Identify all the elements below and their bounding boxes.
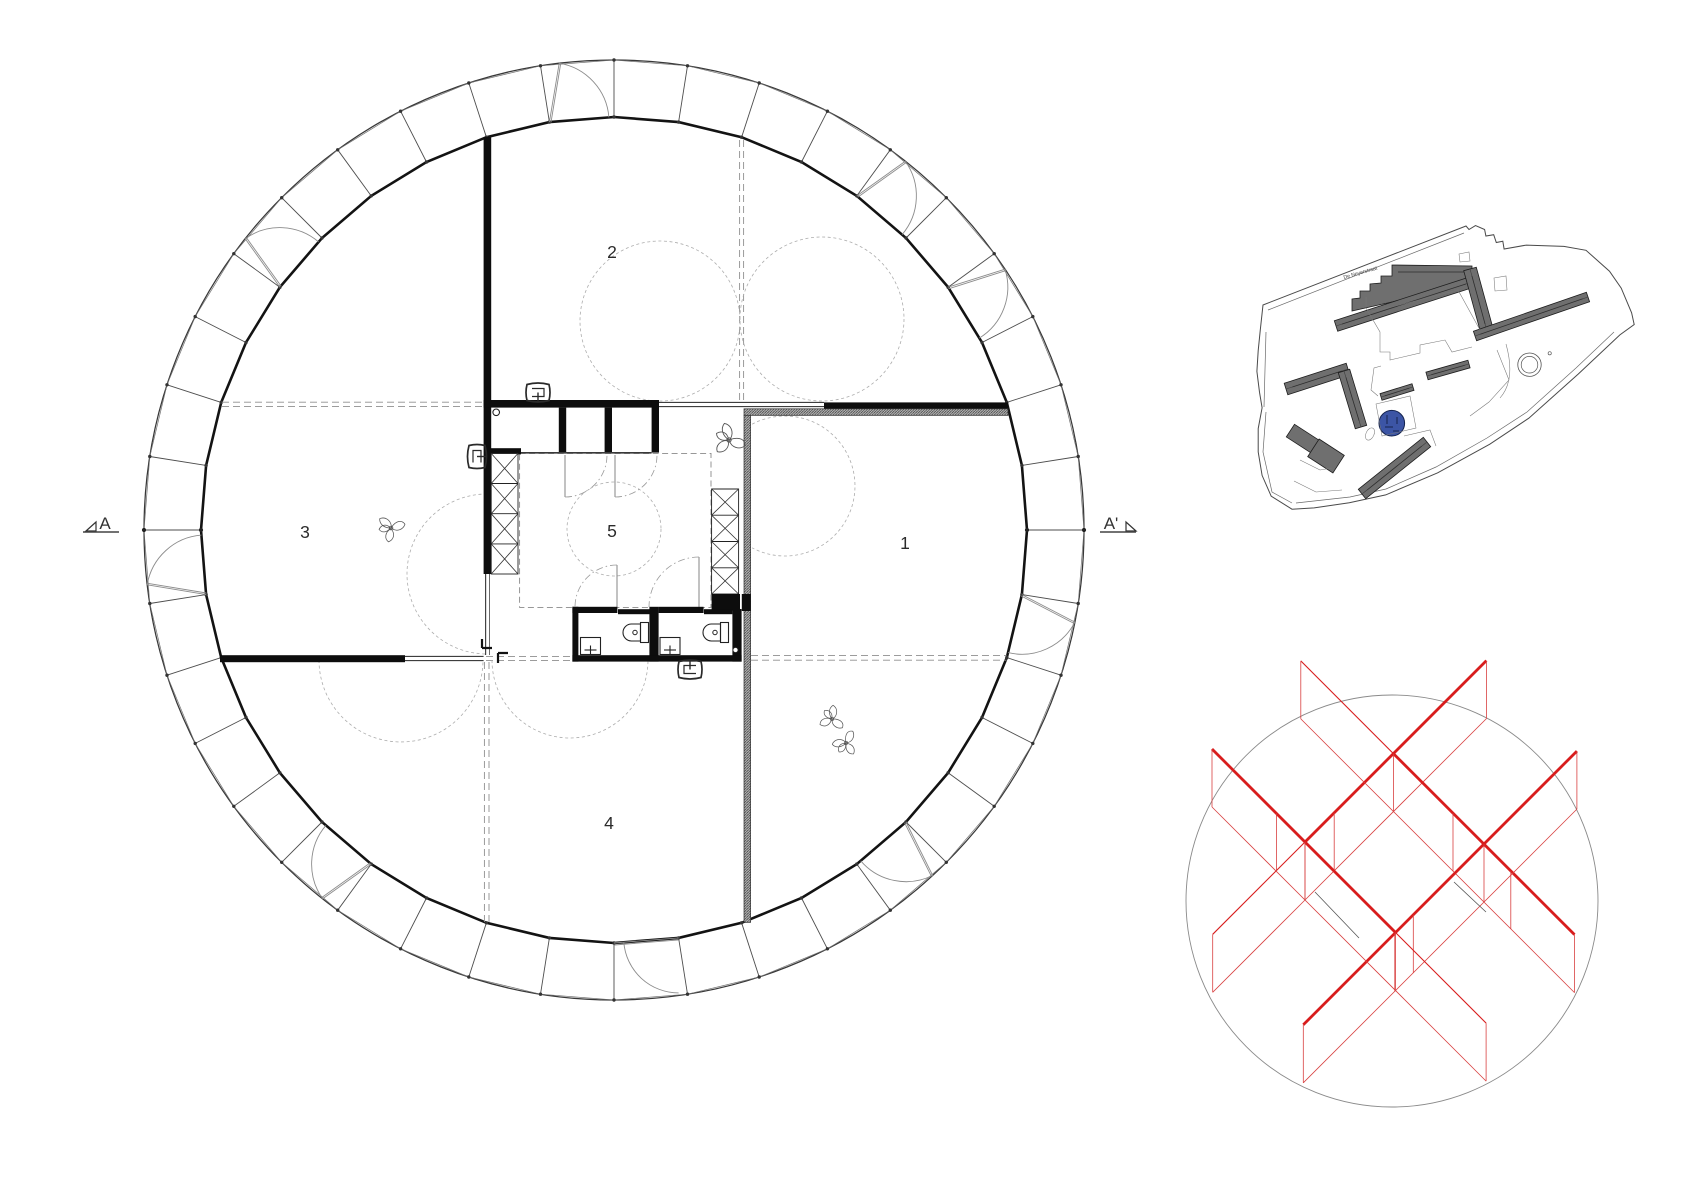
svg-text:1: 1 (900, 533, 910, 553)
svg-text:3: 3 (300, 522, 310, 542)
svg-text:A': A' (1104, 514, 1119, 533)
svg-text:5: 5 (607, 521, 617, 541)
svg-text:4: 4 (604, 813, 614, 833)
svg-text:A: A (99, 514, 111, 533)
svg-text:De Neyerstraat: De Neyerstraat (1343, 265, 1379, 281)
svg-text:2: 2 (607, 242, 617, 262)
